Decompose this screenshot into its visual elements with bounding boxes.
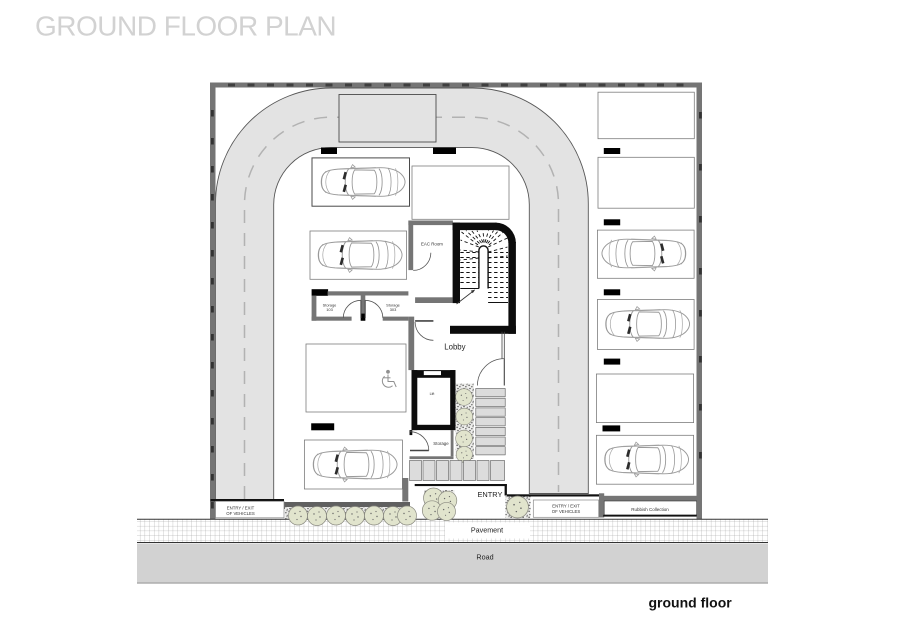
- svg-text:Rubbish Collection: Rubbish Collection: [631, 507, 669, 512]
- svg-text:ground floor: ground floor: [649, 595, 733, 611]
- svg-text:103: 103: [326, 307, 333, 312]
- svg-text:OF VEHICLES: OF VEHICLES: [226, 511, 255, 516]
- svg-text:ENTRY / EXIT: ENTRY / EXIT: [552, 504, 580, 509]
- svg-text:GROUND FLOOR PLAN: GROUND FLOOR PLAN: [35, 11, 336, 42]
- svg-text:ENTRY: ENTRY: [478, 490, 503, 499]
- svg-text:Storage: Storage: [433, 441, 449, 446]
- svg-text:Pavement: Pavement: [471, 526, 503, 535]
- svg-text:Lobby: Lobby: [444, 343, 465, 352]
- svg-text:EAC Room: EAC Room: [421, 242, 443, 247]
- svg-text:OF VEHICLES: OF VEHICLES: [552, 509, 581, 514]
- svg-text:ENTRY / EXIT: ENTRY / EXIT: [227, 506, 255, 511]
- svg-text:303: 303: [390, 307, 397, 312]
- svg-text:Road: Road: [476, 553, 493, 562]
- svg-text:Lift: Lift: [430, 392, 435, 396]
